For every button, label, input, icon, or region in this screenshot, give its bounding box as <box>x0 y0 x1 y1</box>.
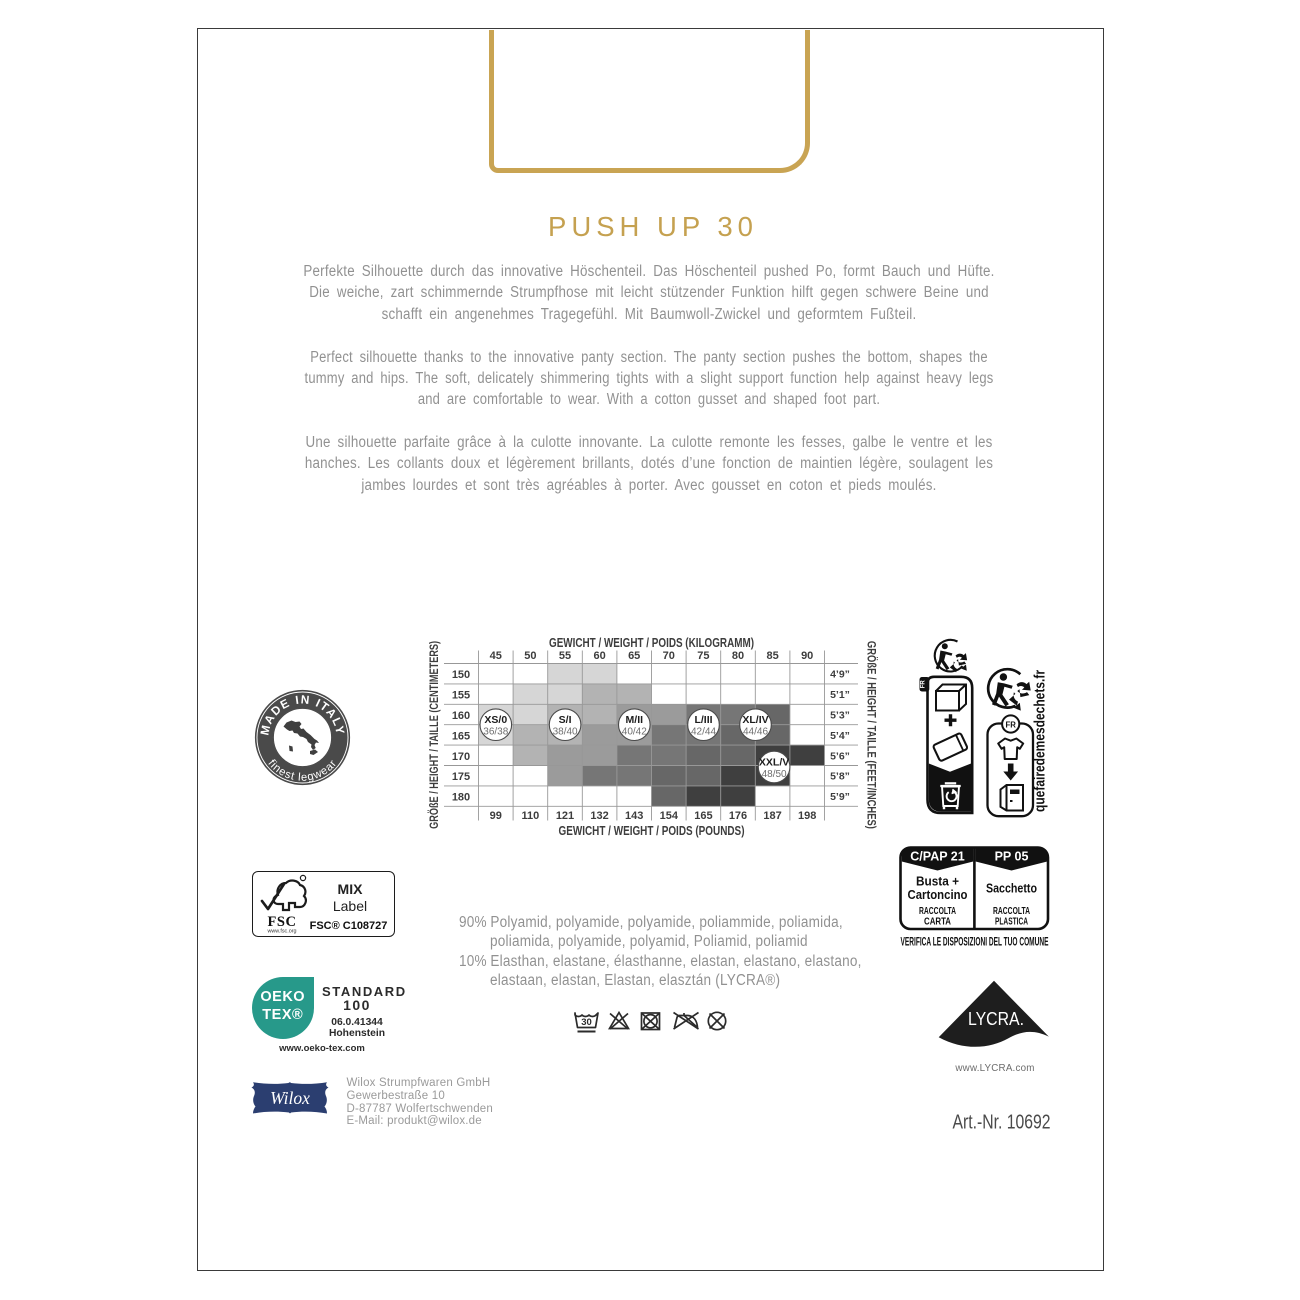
svg-text:FR: FR <box>921 680 927 689</box>
svg-text:143: 143 <box>625 810 643 822</box>
svg-text:165: 165 <box>694 810 712 822</box>
svg-text:176: 176 <box>729 810 747 822</box>
svg-text:180: 180 <box>452 792 470 804</box>
svg-text:XS/0: XS/0 <box>484 714 507 726</box>
svg-text:PP 05: PP 05 <box>995 850 1029 864</box>
svg-text:M/II: M/II <box>626 714 644 726</box>
svg-text:65: 65 <box>628 650 640 662</box>
svg-text:Wilox: Wilox <box>270 1088 310 1108</box>
svg-text:4’9”: 4’9” <box>830 669 850 681</box>
svg-text:60: 60 <box>593 650 605 662</box>
svg-text:GEWICHT / WEIGHT / POIDS (POUN: GEWICHT / WEIGHT / POIDS (POUNDS) <box>559 824 745 838</box>
svg-text:5’6”: 5’6” <box>830 750 850 762</box>
svg-text:S/I: S/I <box>559 714 572 726</box>
svg-text:XXL/V: XXL/V <box>759 757 789 769</box>
svg-text:85: 85 <box>766 650 778 662</box>
svg-text:55: 55 <box>559 650 571 662</box>
svg-text:XL/IV: XL/IV <box>742 714 768 726</box>
svg-text:45: 45 <box>490 650 502 662</box>
svg-text:44/46: 44/46 <box>743 727 768 738</box>
svg-text:www.fsc.org: www.fsc.org <box>266 929 296 935</box>
svg-text:170: 170 <box>452 751 470 763</box>
svg-text:50: 50 <box>524 650 536 662</box>
svg-text:36/38: 36/38 <box>483 727 508 738</box>
svg-text:154: 154 <box>660 810 679 822</box>
svg-text:VERIFICA LE DISPOSIZIONI DEL T: VERIFICA LE DISPOSIZIONI DEL TUO COMUNE <box>901 937 1049 949</box>
svg-text:C/PAP 21: C/PAP 21 <box>910 850 964 864</box>
svg-text:121: 121 <box>556 810 574 822</box>
svg-text:GRÖßE / HEIGHT / TAILLE (FEET/: GRÖßE / HEIGHT / TAILLE (FEET/INCHES) <box>865 641 880 829</box>
svg-text:80: 80 <box>732 650 744 662</box>
svg-text:GEWICHT / WEIGHT / POIDS (KILO: GEWICHT / WEIGHT / POIDS (KILOGRAMM) <box>549 636 754 650</box>
svg-text:Cartoncino: Cartoncino <box>908 888 968 902</box>
svg-text:30: 30 <box>581 1017 592 1028</box>
svg-text:5’8”: 5’8” <box>830 771 850 783</box>
svg-text:38/40: 38/40 <box>553 727 578 738</box>
svg-text:LYCRA.: LYCRA. <box>968 1009 1024 1029</box>
svg-text:GRÖßE / HEIGHT / TAILLE (CENTI: GRÖßE / HEIGHT / TAILLE (CENTIMETERS) <box>426 641 441 829</box>
svg-text:5’9”: 5’9” <box>830 791 850 803</box>
svg-text:Art.-Nr. 10692: Art.-Nr. 10692 <box>953 1112 1051 1134</box>
svg-text:155: 155 <box>452 690 470 702</box>
svg-text:PLASTICA: PLASTICA <box>995 916 1028 928</box>
svg-text:110: 110 <box>522 810 540 822</box>
svg-text:198: 198 <box>798 810 816 822</box>
svg-text:quefairedemesdechets.fr: quefairedemesdechets.fr <box>1033 670 1049 812</box>
svg-text:160: 160 <box>452 710 470 722</box>
svg-text:90: 90 <box>801 650 813 662</box>
svg-text:132: 132 <box>590 810 608 822</box>
svg-text:165: 165 <box>452 730 470 742</box>
svg-text:175: 175 <box>452 771 470 783</box>
svg-text:42/44: 42/44 <box>691 727 716 738</box>
svg-text:70: 70 <box>663 650 675 662</box>
svg-text:99: 99 <box>490 810 502 822</box>
svg-text:5’3”: 5’3” <box>830 710 850 722</box>
svg-text:CARTA: CARTA <box>924 916 951 928</box>
svg-text:5’4”: 5’4” <box>830 730 850 742</box>
svg-text:L/III: L/III <box>694 714 712 726</box>
svg-text:Sacchetto: Sacchetto <box>986 882 1037 896</box>
svg-text:75: 75 <box>697 650 709 662</box>
svg-text:187: 187 <box>763 810 781 822</box>
svg-text:40/42: 40/42 <box>622 727 647 738</box>
svg-text:5’1”: 5’1” <box>830 689 850 701</box>
svg-text:Busta +: Busta + <box>916 875 959 889</box>
svg-text:FR: FR <box>1005 720 1016 729</box>
svg-text:150: 150 <box>452 669 470 681</box>
svg-text:48/50: 48/50 <box>762 769 787 780</box>
